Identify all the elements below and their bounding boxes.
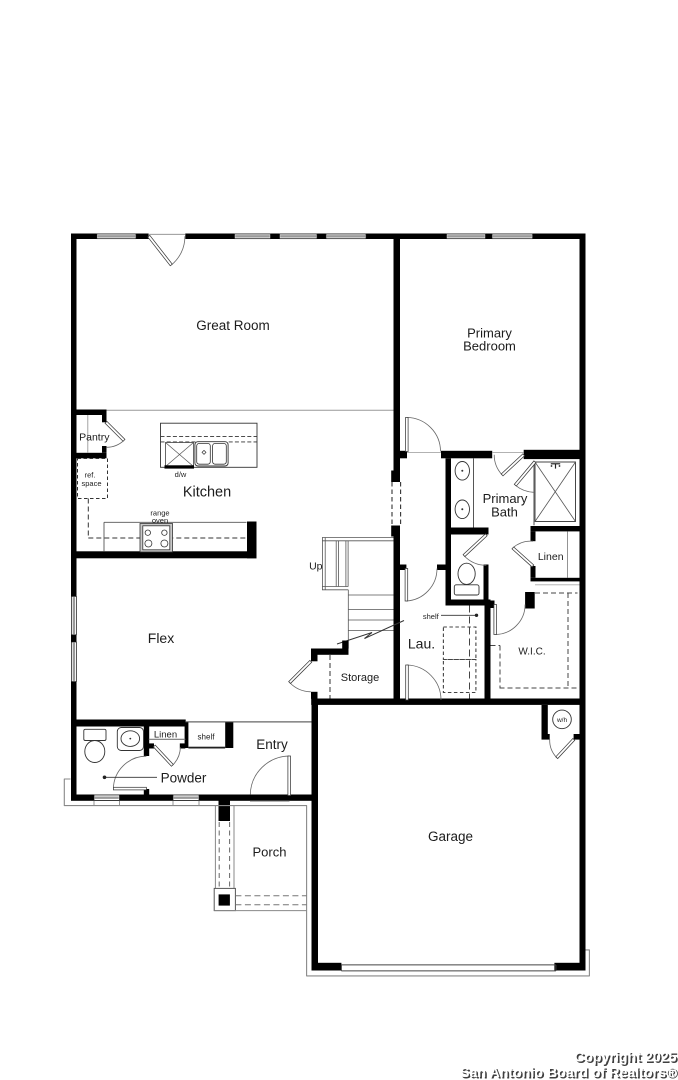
svg-text:Porch: Porch: [253, 845, 287, 860]
svg-text:Entry: Entry: [256, 737, 288, 752]
svg-text:oven: oven: [152, 516, 168, 525]
svg-text:Storage: Storage: [341, 672, 380, 684]
svg-text:Pantry: Pantry: [79, 432, 110, 444]
svg-text:W.I.C.: W.I.C.: [518, 647, 545, 658]
svg-text:shelf: shelf: [198, 733, 216, 742]
svg-text:Up: Up: [309, 561, 323, 573]
svg-text:Linen: Linen: [154, 729, 177, 740]
svg-text:Great Room: Great Room: [196, 318, 270, 333]
svg-text:Bath: Bath: [491, 505, 518, 520]
svg-text:Linen: Linen: [538, 551, 564, 563]
svg-text:Kitchen: Kitchen: [183, 485, 231, 501]
svg-text:Flex: Flex: [148, 630, 174, 646]
svg-text:Powder: Powder: [161, 771, 207, 786]
svg-text:Garage: Garage: [428, 829, 473, 844]
svg-text:shelf: shelf: [423, 612, 440, 621]
svg-text:space: space: [81, 479, 101, 488]
svg-text:San Antonio Board of Realtors®: San Antonio Board of Realtors®: [460, 1065, 677, 1080]
svg-text:Lau.: Lau.: [408, 636, 435, 652]
svg-text:w/h: w/h: [556, 717, 568, 724]
svg-text:Copyright 2025: Copyright 2025: [574, 1050, 677, 1066]
svg-text:d/w: d/w: [175, 470, 187, 479]
svg-text:Bedroom: Bedroom: [463, 339, 516, 354]
